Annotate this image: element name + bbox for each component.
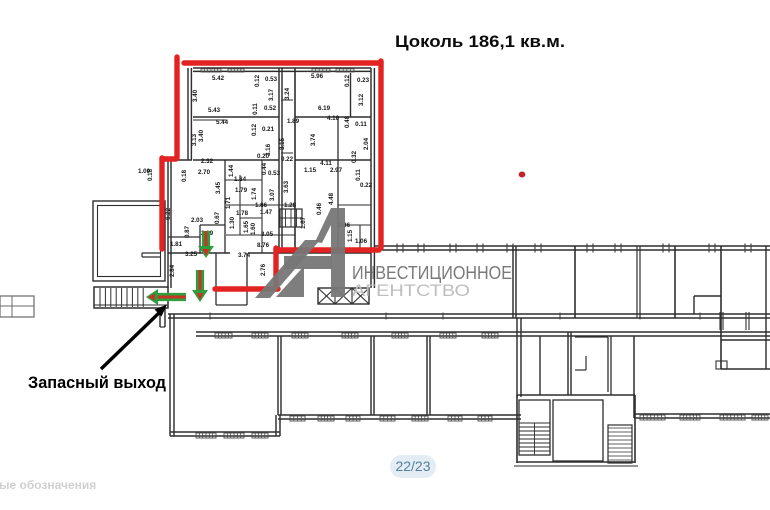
svg-text:АГЕНТСТВО: АГЕНТСТВО bbox=[352, 281, 470, 300]
svg-text:0.11: 0.11 bbox=[252, 103, 259, 115]
svg-text:3.13: 3.13 bbox=[191, 133, 198, 146]
svg-text:1.06: 1.06 bbox=[355, 238, 368, 245]
svg-text:1.28: 1.28 bbox=[284, 202, 297, 209]
svg-text:1.74: 1.74 bbox=[251, 187, 258, 200]
svg-text:3.25: 3.25 bbox=[185, 251, 198, 258]
svg-text:1.30: 1.30 bbox=[229, 216, 236, 229]
svg-text:5.96: 5.96 bbox=[311, 73, 324, 80]
svg-text:2.32: 2.32 bbox=[201, 158, 214, 165]
svg-text:0.32: 0.32 bbox=[351, 150, 358, 163]
svg-text:5.42: 5.42 bbox=[212, 75, 225, 82]
svg-text:5.43: 5.43 bbox=[208, 107, 221, 114]
svg-text:1.15: 1.15 bbox=[304, 167, 317, 174]
svg-text:3.74: 3.74 bbox=[310, 133, 317, 146]
svg-text:2.97: 2.97 bbox=[330, 167, 343, 174]
svg-text:0.12: 0.12 bbox=[344, 74, 351, 87]
svg-text:0.18: 0.18 bbox=[181, 169, 188, 182]
svg-text:1.65: 1.65 bbox=[243, 220, 250, 233]
svg-text:0.67: 0.67 bbox=[214, 211, 221, 224]
svg-text:Запасный выход: Запасный выход bbox=[28, 373, 166, 392]
svg-text:ные обозначения: ные обозначения bbox=[0, 478, 96, 492]
svg-text:1.84: 1.84 bbox=[234, 176, 247, 183]
svg-text:2.84: 2.84 bbox=[169, 264, 176, 277]
svg-text:4.10: 4.10 bbox=[327, 115, 340, 122]
svg-text:3.40: 3.40 bbox=[198, 129, 205, 142]
svg-text:3.17: 3.17 bbox=[268, 88, 275, 101]
svg-text:0.87: 0.87 bbox=[184, 225, 191, 238]
svg-text:0.44: 0.44 bbox=[261, 162, 268, 175]
svg-text:0.20: 0.20 bbox=[257, 153, 270, 160]
svg-text:2.03: 2.03 bbox=[191, 217, 204, 224]
svg-text:3.74: 3.74 bbox=[238, 252, 251, 259]
svg-text:3.07: 3.07 bbox=[269, 188, 276, 201]
svg-text:1.67: 1.67 bbox=[300, 216, 307, 229]
svg-text:0.22: 0.22 bbox=[281, 156, 294, 163]
svg-text:0.12: 0.12 bbox=[254, 74, 261, 87]
svg-text:0.22: 0.22 bbox=[360, 182, 373, 189]
svg-text:1.15: 1.15 bbox=[347, 229, 354, 242]
svg-text:1.60: 1.60 bbox=[250, 222, 257, 235]
svg-text:22/23: 22/23 bbox=[395, 458, 430, 474]
svg-text:1.89: 1.89 bbox=[287, 118, 300, 125]
svg-text:0.53: 0.53 bbox=[265, 76, 278, 83]
svg-text:0.48: 0.48 bbox=[344, 115, 351, 128]
svg-text:4.48: 4.48 bbox=[328, 192, 335, 205]
svg-text:0.11: 0.11 bbox=[355, 169, 362, 181]
svg-text:4.11: 4.11 bbox=[320, 160, 332, 167]
svg-text:3.05: 3.05 bbox=[261, 231, 274, 238]
svg-text:3.45: 3.45 bbox=[215, 181, 222, 194]
svg-text:0.18: 0.18 bbox=[147, 168, 154, 181]
svg-text:5.44: 5.44 bbox=[216, 119, 229, 126]
svg-text:2.76: 2.76 bbox=[260, 263, 267, 276]
svg-text:1.47: 1.47 bbox=[260, 209, 273, 216]
svg-text:0.21: 0.21 bbox=[262, 126, 275, 133]
svg-text:3.15: 3.15 bbox=[279, 137, 286, 150]
svg-text:8.76: 8.76 bbox=[257, 242, 270, 249]
svg-text:3.40: 3.40 bbox=[192, 89, 199, 102]
svg-text:0.23: 0.23 bbox=[357, 77, 370, 84]
svg-text:0.11: 0.11 bbox=[355, 121, 367, 128]
svg-text:1.79: 1.79 bbox=[235, 187, 248, 194]
svg-text:0.46: 0.46 bbox=[316, 202, 323, 215]
svg-text:0.12: 0.12 bbox=[251, 123, 258, 136]
svg-text:2.70: 2.70 bbox=[198, 169, 211, 176]
svg-text:0.52: 0.52 bbox=[264, 105, 277, 112]
svg-text:2.04: 2.04 bbox=[363, 137, 370, 150]
svg-text:3.12: 3.12 bbox=[358, 93, 365, 106]
svg-text:6.19: 6.19 bbox=[318, 105, 331, 112]
svg-text:Цоколь 186,1 кв.м.: Цоколь 186,1 кв.м. bbox=[395, 32, 565, 51]
svg-text:3.63: 3.63 bbox=[283, 180, 290, 193]
svg-text:6.22: 6.22 bbox=[165, 207, 172, 220]
svg-text:1.78: 1.78 bbox=[236, 210, 249, 217]
svg-text:1.71: 1.71 bbox=[225, 196, 232, 209]
svg-text:ИНВЕСТИЦИОННОЕ: ИНВЕСТИЦИОННОЕ bbox=[352, 262, 512, 283]
svg-text:1.81: 1.81 bbox=[170, 241, 183, 248]
svg-text:0.53: 0.53 bbox=[268, 170, 281, 177]
svg-text:3.24: 3.24 bbox=[284, 87, 291, 100]
svg-text:1.86: 1.86 bbox=[255, 202, 268, 209]
